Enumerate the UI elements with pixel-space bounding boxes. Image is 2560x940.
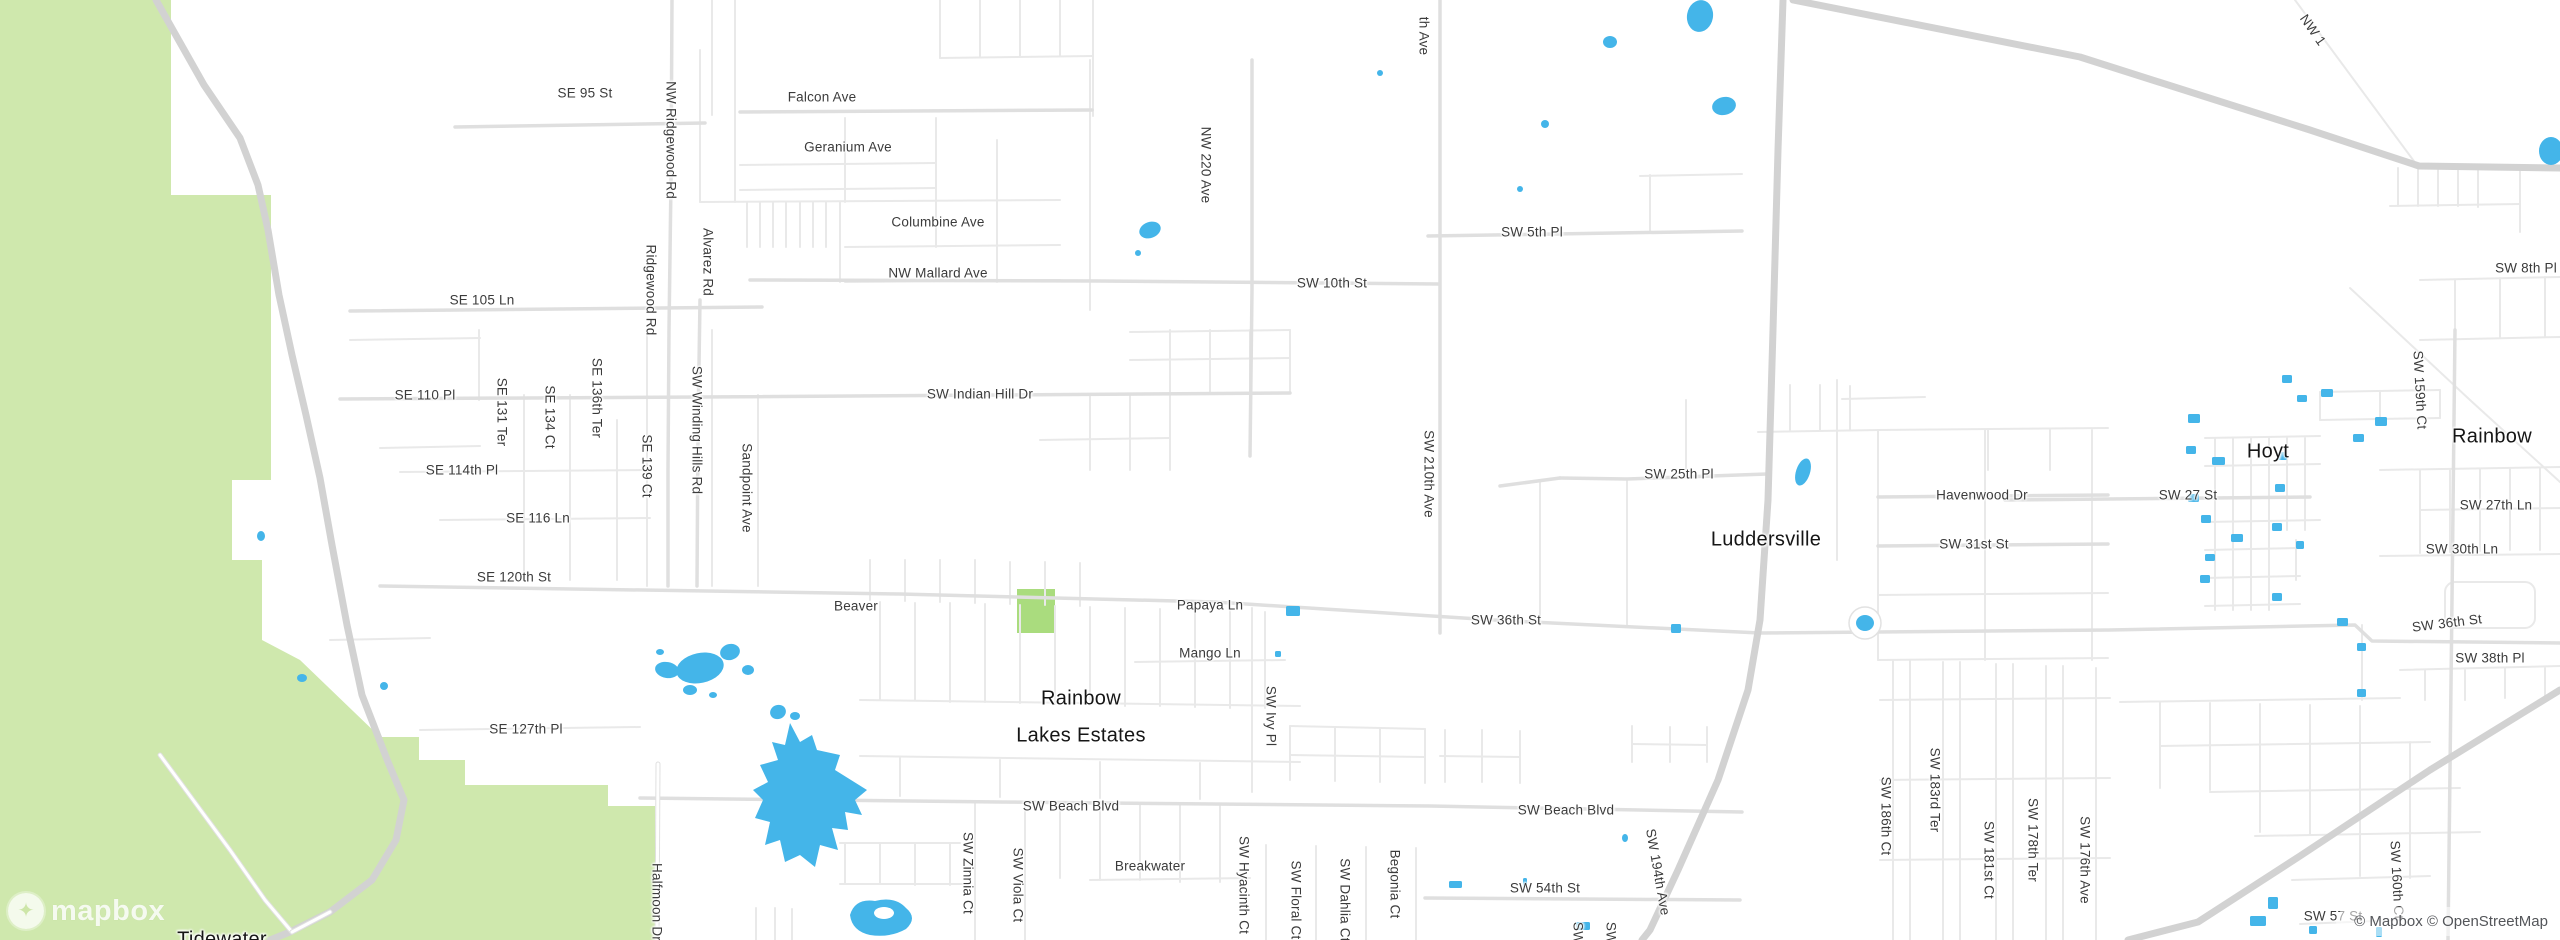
pond (790, 712, 800, 720)
street-label: SW 30th Ln (2426, 542, 2499, 557)
town-label: Tidewater (177, 929, 267, 940)
road-medium (2448, 330, 2455, 940)
pond (2212, 457, 2225, 465)
road-highway (1793, 0, 2560, 168)
pond (1517, 186, 1523, 192)
street-label: SE 131 Ter (495, 378, 510, 447)
street-label: SW Floral Ct (1289, 861, 1304, 940)
street-label: SW 38th Pl (2455, 651, 2525, 666)
street-label: SW Winding Hills Rd (690, 366, 705, 494)
street-label: SW Viola Ct (1011, 848, 1026, 923)
pond (2200, 575, 2210, 583)
street-label: SE 116 Ln (506, 511, 570, 526)
pond (1449, 881, 1462, 888)
pond (257, 531, 265, 541)
road-minor (2205, 604, 2300, 606)
road-minor (740, 163, 935, 165)
street-label: th Ave (1417, 17, 1432, 55)
road-minor (1632, 744, 1707, 745)
road-minor (1130, 358, 1290, 360)
pond (2282, 375, 2292, 383)
pond (2186, 446, 2196, 454)
pond (1671, 624, 1681, 633)
street-label: Geranium Ave (804, 140, 892, 155)
street-label: Mango Ln (1179, 646, 1241, 661)
road-minor (1878, 593, 2108, 595)
street-label: SE 139 Ct (640, 434, 655, 497)
street-label: SW Hyacinth Ct (1237, 836, 1252, 934)
road-medium (1250, 60, 1252, 456)
pond (2205, 554, 2215, 561)
lake (753, 723, 867, 867)
pond (2353, 434, 2364, 442)
pond (656, 649, 664, 655)
street-label: SE 114th Pl (426, 463, 499, 478)
pond (683, 685, 697, 695)
pond (654, 660, 680, 680)
road-minor (1640, 174, 1742, 176)
map-canvas[interactable]: RainbowLakes EstatesLuddersvilleHoytRain… (0, 0, 2560, 940)
road-minor (860, 756, 1300, 762)
street-label: SW Indian Hill Dr (927, 387, 1033, 402)
pond (1541, 120, 1549, 128)
street-label: NW Ridgewood Rd (664, 81, 679, 199)
road-minor (1440, 756, 1520, 757)
pond (2321, 389, 2333, 397)
pond (742, 665, 754, 675)
pond (1137, 219, 1163, 242)
street-label: SW 31st St (1939, 537, 2009, 552)
pond (2357, 643, 2366, 651)
pond (1622, 834, 1628, 842)
town-label: Rainbow (1041, 688, 1121, 711)
street-label: SW Ivy Pl (1264, 686, 1279, 746)
street-label: Ridgewood Rd (644, 245, 659, 336)
map-attribution[interactable]: © Mapbox © OpenStreetMap (2336, 907, 2560, 936)
road-minor (1880, 698, 2110, 700)
street-label: SW Beach Blvd (1518, 803, 1614, 818)
town-label: Luddersville (1711, 529, 1821, 552)
pond (2296, 541, 2304, 549)
road-minor (350, 338, 480, 340)
road-minor (2210, 788, 2460, 792)
pond (1286, 606, 1300, 616)
street-label: Papaya Ln (1177, 598, 1243, 613)
pond (1603, 36, 1617, 48)
road-minor (940, 56, 1093, 58)
road-medium (2005, 497, 2310, 500)
street-label: SW 10th St (1297, 276, 1367, 291)
street-label: SW 178th Ter (2026, 798, 2041, 882)
pond (1135, 250, 1141, 256)
street-label: SE 127th Pl (489, 722, 563, 737)
road-minor (2205, 548, 2300, 550)
road-minor (1842, 397, 1925, 399)
road-medium (1500, 478, 1560, 486)
road-minor (2400, 666, 2560, 670)
mapbox-logo[interactable]: ✦ mapbox (8, 893, 165, 929)
pond (1377, 70, 1383, 76)
street-label: Falcon Ave (788, 90, 857, 105)
road-minor (330, 638, 430, 640)
pond (2272, 593, 2282, 601)
road-minor (2160, 742, 2430, 746)
pond (1275, 651, 1281, 657)
road-minor (1758, 430, 1880, 432)
street-label: Sandpoint Ave (740, 443, 755, 532)
street-label: NW 220 Ave (1199, 127, 1214, 204)
pond (2272, 523, 2282, 531)
road-minor (1878, 658, 2108, 660)
street-label: SW 181st Ct (1982, 821, 1997, 899)
town-label: Hoyt (2247, 441, 2289, 464)
street-label: Havenwood Dr (1936, 488, 2028, 503)
road-minor (380, 446, 480, 448)
street-label: SE 134 Ct (543, 385, 558, 448)
street-label: SW 25th Pl (1644, 467, 1714, 482)
pond (718, 642, 741, 663)
pond (2250, 916, 2266, 926)
street-label: NW Mallard Ave (888, 266, 987, 281)
street-label: SW 27th Ln (2460, 498, 2533, 513)
pond (2201, 515, 2211, 523)
street-label: SW 210th Ave (1422, 430, 1437, 518)
street-label: SE 110 Pl (395, 388, 456, 403)
street-label: Columbine Ave (891, 215, 984, 230)
pond (1710, 95, 1737, 118)
street-label: Beaver (834, 599, 878, 614)
street-label: SW Zinnia Ct (961, 832, 976, 914)
street-label: SW (1571, 922, 1586, 940)
pond (768, 703, 788, 722)
pond (2275, 484, 2285, 492)
road-highway (2128, 690, 2560, 940)
town-label: Lakes Estates (1016, 725, 1146, 748)
attribution-text: © Mapbox © OpenStreetMap (2354, 913, 2548, 930)
pond (2309, 926, 2317, 934)
street-label: Halfmoon Dr (650, 863, 665, 940)
road-minor (700, 200, 1060, 202)
street-label: Breakwater (1115, 859, 1185, 874)
street-label: SW Beach Blvd (1023, 799, 1119, 814)
street-label: SE 120th St (477, 570, 551, 585)
road-minor (2205, 520, 2320, 522)
road-minor (1130, 330, 1290, 332)
lake-island (874, 907, 894, 919)
road-minor (2120, 698, 2400, 702)
pond (673, 648, 726, 687)
street-label: SW 54th St (1510, 881, 1580, 896)
road-minor (1880, 778, 2110, 780)
road-minor (2420, 337, 2560, 340)
street-label: SW 176th Ave (2078, 816, 2093, 904)
road-minor (845, 245, 1060, 247)
road-minor (2205, 576, 2300, 578)
pond (2268, 897, 2278, 909)
mapbox-wordmark: mapbox (51, 895, 165, 928)
street-label: SW 36th St (1471, 613, 1541, 628)
road-minor (2380, 467, 2560, 470)
street-label: SW 27 St (2159, 488, 2218, 503)
pond (2337, 618, 2348, 626)
pond (2297, 395, 2307, 402)
road-minor (2205, 436, 2320, 438)
road-minor (1040, 438, 1170, 440)
pond (1684, 0, 1715, 34)
pond (380, 682, 388, 690)
street-label: SW 5th Pl (1501, 225, 1563, 240)
street-label: SW (1604, 922, 1619, 940)
pond (2375, 417, 2387, 426)
road-medium (1425, 898, 1740, 900)
town-label: Rainbow (2452, 426, 2532, 449)
map-base-layer (0, 0, 2560, 940)
street-label: Begonia Ct (1388, 850, 1403, 919)
pond (1792, 457, 1814, 488)
road-minor (2255, 832, 2480, 836)
road-minor (1878, 428, 2108, 430)
road-medium (740, 110, 1092, 112)
pond (2539, 137, 2560, 165)
road-minor (1290, 755, 1425, 757)
street-label: SW 183rd Ter (1928, 748, 1943, 833)
street-label: SW 186th Ct (1879, 777, 1894, 856)
road-medium (340, 393, 1290, 399)
street-label: SE 136th Ter (590, 358, 605, 438)
street-label: SE 95 St (558, 86, 613, 101)
road-minor (740, 188, 935, 190)
road-minor (2420, 277, 2560, 280)
street-label: Alvarez Rd (701, 228, 716, 296)
road-minor (1290, 726, 1425, 729)
mapbox-pin-icon: ✦ (8, 893, 44, 929)
street-label: SW Dahlia Ct (1338, 858, 1353, 940)
pond (709, 692, 717, 698)
road-minor (2390, 204, 2520, 206)
pond (2231, 534, 2243, 542)
pond (2357, 689, 2366, 697)
street-label: SW 8th Pl (2495, 261, 2557, 276)
pond-water (1856, 615, 1874, 631)
street-label: SE 105 Ln (450, 293, 515, 308)
pond (297, 674, 307, 682)
road-minor (1090, 878, 1250, 880)
road-medium (1428, 231, 1742, 236)
pond (2188, 414, 2200, 423)
